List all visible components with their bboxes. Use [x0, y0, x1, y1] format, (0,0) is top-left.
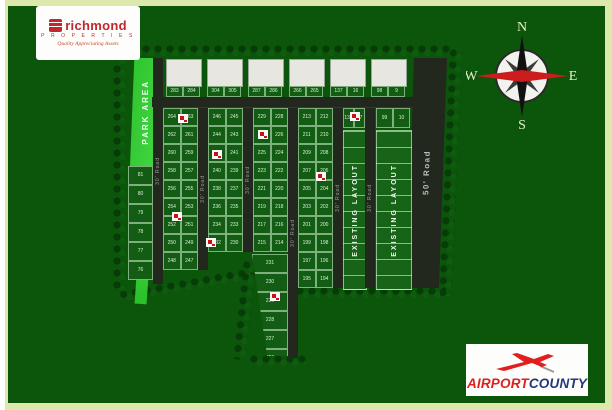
road-30-label: 30' Road: [155, 157, 161, 185]
road-50-label: 50' Road: [421, 150, 432, 195]
plot-pair: 197196: [298, 252, 333, 270]
plot-pair: 250249: [163, 234, 198, 252]
top-plot-pair: 266265: [289, 86, 323, 97]
plot: 304: [207, 86, 224, 97]
plot: 217: [253, 216, 271, 234]
plot: 262: [163, 126, 181, 144]
plot-pair: 225224: [253, 144, 288, 162]
plot: 213: [298, 108, 316, 126]
plot: 233: [226, 216, 244, 234]
wedge-column: 231230229228227226: [252, 254, 288, 356]
plot: 212: [316, 108, 334, 126]
plot: 10: [393, 108, 410, 128]
plot: 283: [166, 86, 183, 97]
plot: 214: [271, 234, 289, 252]
road-30: 30' Road: [288, 108, 298, 358]
plot-pair: 195194: [298, 270, 333, 288]
plot: 229: [253, 108, 271, 126]
plot-pair: 236235: [208, 198, 243, 216]
plot: 246: [208, 108, 226, 126]
left-plot: 79: [128, 204, 153, 223]
compass-center: [518, 72, 526, 80]
plot: 98: [371, 86, 388, 97]
plot: 222: [271, 162, 289, 180]
existing-layout-strip-1: EXISTING LAYOUT: [343, 130, 367, 290]
plot: 265: [306, 86, 323, 97]
road-30-label: 30' Road: [290, 219, 296, 247]
plot-pair: 246245: [208, 108, 243, 126]
poster: PARK AREA 50' Road EXISTING LAYOUT EXIST…: [0, 0, 612, 410]
plot: 261: [181, 126, 199, 144]
plot: 223: [253, 162, 271, 180]
top-block: [371, 59, 407, 87]
plot: 256: [163, 180, 181, 198]
plot: 260: [163, 144, 181, 162]
plot: 238: [208, 180, 226, 198]
top-plot-pair: 283284: [166, 86, 200, 97]
plot-pair: 219218: [253, 198, 288, 216]
sold-marker: [270, 292, 280, 301]
plot: 199: [298, 234, 316, 252]
plot: 249: [181, 234, 199, 252]
plot: 236: [208, 198, 226, 216]
plot: 253: [181, 198, 199, 216]
plot: 258: [163, 162, 181, 180]
plot: 137: [330, 86, 347, 97]
plot-pair: 203202: [298, 198, 333, 216]
plot: 203: [298, 198, 316, 216]
plot: 235: [226, 198, 244, 216]
plot-pair: 244243: [208, 126, 243, 144]
plot: 207: [298, 162, 316, 180]
road-30: 30' Road: [365, 108, 375, 288]
plot: 201: [298, 216, 316, 234]
plot-pair: 201200: [298, 216, 333, 234]
left-plot: 77: [128, 242, 153, 261]
top-block: [207, 59, 243, 87]
compass-n-label: N: [517, 20, 527, 35]
sold-marker: [206, 238, 216, 247]
plot-pair: 258257: [163, 162, 198, 180]
plot-pair: 260259: [163, 144, 198, 162]
road-30-label: 30' Road: [367, 184, 373, 212]
top-plot-pair: 304305: [207, 86, 241, 97]
road-horizontal: [152, 97, 414, 107]
plot-pair: 209208: [298, 144, 333, 162]
tree-row-top: [118, 44, 454, 57]
plot: 210: [316, 126, 334, 144]
plot-pair: 229228: [253, 108, 288, 126]
plot: 239: [226, 162, 244, 180]
plot: 99: [376, 108, 393, 128]
plot-pair: 213212: [298, 108, 333, 126]
airport-county-logo: AIRPORTCOUNTY: [466, 344, 588, 396]
plot: 197: [298, 252, 316, 270]
left-plot: 76: [128, 261, 153, 280]
plot-pair: 256255: [163, 180, 198, 198]
sold-marker: [212, 150, 222, 159]
plot: 194: [316, 270, 334, 288]
plot: 198: [316, 234, 334, 252]
plot-pair: 215214: [253, 234, 288, 252]
plot: 218: [271, 198, 289, 216]
plot: 78: [128, 223, 153, 242]
plot: 219: [253, 198, 271, 216]
plot: 257: [181, 162, 199, 180]
plot: 205: [298, 180, 316, 198]
plot: 209: [298, 144, 316, 162]
plot: 228: [252, 311, 288, 330]
plot: 77: [128, 242, 153, 261]
road-30-label: 30' Road: [200, 175, 206, 203]
sold-marker: [172, 212, 182, 221]
richmond-name: richmond: [65, 19, 127, 32]
road-30: 30' Road: [153, 58, 163, 284]
plot-pair: 211210: [298, 126, 333, 144]
road-30: 30' Road: [243, 108, 253, 252]
top-block: [166, 59, 202, 87]
compass-rose: N S W E: [466, 18, 578, 132]
plot: 237: [226, 180, 244, 198]
richmond-logo: richmond P R O P E R T I E S Quality App…: [36, 6, 140, 60]
plot-pair: 199198: [298, 234, 333, 252]
plot-pair: 221220: [253, 180, 288, 198]
top-plot-pair: 989: [371, 86, 405, 97]
park-area-label: PARK AREA: [141, 80, 150, 145]
top-block: [289, 59, 325, 87]
road-30-label: 30' Road: [335, 184, 341, 212]
airplane-icon: [488, 348, 566, 374]
plot: 204: [316, 180, 334, 198]
sold-marker: [258, 130, 268, 139]
plot: 245: [226, 108, 244, 126]
plot-pair: 217216: [253, 216, 288, 234]
plot: 195: [298, 270, 316, 288]
plot: 243: [226, 126, 244, 144]
plot: 80: [128, 185, 153, 204]
plot: 248: [163, 252, 181, 270]
plot: 259: [181, 144, 199, 162]
top-plot-pair: 13716: [330, 86, 364, 97]
plot: 200: [316, 216, 334, 234]
road-30-label: 30' Road: [245, 166, 251, 194]
compass-w-label: W: [466, 69, 478, 84]
plot: 79: [128, 204, 153, 223]
airport-word: AIRPORT: [467, 376, 529, 391]
plot: 230: [252, 273, 288, 292]
top-plot-pair: 287286: [248, 86, 282, 97]
plot-pair: 205204: [298, 180, 333, 198]
plot: 202: [316, 198, 334, 216]
plot: 227: [252, 330, 288, 349]
road-30: 30' Road: [333, 108, 343, 288]
plot: 225: [253, 144, 271, 162]
compass-s-label: S: [518, 118, 526, 132]
left-plot: 78: [128, 223, 153, 242]
county-word: COUNTY: [529, 376, 587, 391]
plot-pair: 238237: [208, 180, 243, 198]
compass-e-label: E: [569, 69, 578, 84]
plot: 247: [181, 252, 199, 270]
plot: 216: [271, 216, 289, 234]
sold-marker: [350, 112, 360, 121]
plot: 224: [271, 144, 289, 162]
strip2-plot-pair: 9910: [376, 108, 410, 128]
plot-pair: 234233: [208, 216, 243, 234]
sold-marker: [178, 114, 188, 123]
plot: 284: [183, 86, 200, 97]
plot: 226: [271, 126, 289, 144]
richmond-subtitle: P R O P E R T I E S: [41, 33, 135, 39]
plot-pair: 223222: [253, 162, 288, 180]
plot: 244: [208, 126, 226, 144]
existing-layout-strip-2: EXISTING LAYOUT: [376, 130, 412, 290]
plot-pair: 262261: [163, 126, 198, 144]
top-block: [248, 59, 284, 87]
left-plot: 80: [128, 185, 153, 204]
plot: 241: [226, 144, 244, 162]
site-plan: PARK AREA 50' Road EXISTING LAYOUT EXIST…: [112, 44, 464, 396]
plot: 305: [224, 86, 241, 97]
plot: 220: [271, 180, 289, 198]
tree-col-left: [113, 52, 126, 290]
plot: 76: [128, 261, 153, 280]
existing-layout-label-2: EXISTING LAYOUT: [391, 164, 398, 257]
plot: 286: [265, 86, 282, 97]
plot-pair: 248247: [163, 252, 198, 270]
plot: 221: [253, 180, 271, 198]
plot: 16: [347, 86, 364, 97]
plot: 266: [289, 86, 306, 97]
plot: 255: [181, 180, 199, 198]
plot: 208: [316, 144, 334, 162]
plot: 240: [208, 162, 226, 180]
plot: 231: [252, 254, 288, 273]
existing-layout-label-1: EXISTING LAYOUT: [352, 164, 359, 257]
plot-pair: 240239: [208, 162, 243, 180]
sold-marker: [316, 172, 326, 181]
plot: 287: [248, 86, 265, 97]
top-block: [330, 59, 366, 87]
plot: 234: [208, 216, 226, 234]
plot: 251: [181, 216, 199, 234]
plot: 230: [226, 234, 244, 252]
plot: 9: [388, 86, 405, 97]
plot: 250: [163, 234, 181, 252]
plot: 228: [271, 108, 289, 126]
plot: 81: [128, 166, 153, 185]
richmond-tagline: Quality Appreciating Assets: [57, 41, 118, 47]
left-plot: 81: [128, 166, 153, 185]
plot: 196: [316, 252, 334, 270]
plot: 215: [253, 234, 271, 252]
richmond-brick-icon: [49, 19, 62, 32]
plot: 211: [298, 126, 316, 144]
